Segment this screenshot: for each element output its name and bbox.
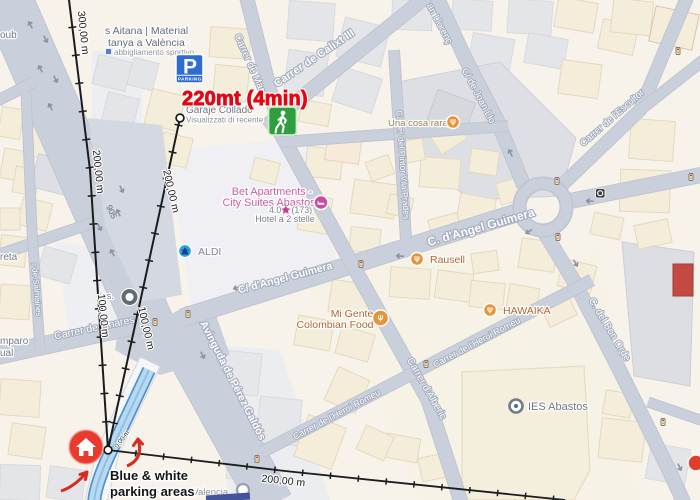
svg-text:parking areas: parking areas: [110, 484, 195, 499]
svg-text:PARKING: PARKING: [178, 76, 202, 82]
svg-text:Visualizzati di recente: Visualizzati di recente: [186, 116, 264, 125]
svg-text:mparo: mparo: [0, 336, 29, 347]
svg-text:Rausell: Rausell: [430, 254, 465, 266]
svg-text:Una cosa rara: Una cosa rara: [388, 118, 448, 129]
svg-text:HAWAIKA: HAWAIKA: [503, 305, 551, 317]
svg-text:Blue & white: Blue & white: [110, 468, 188, 483]
svg-text:Colombian Food: Colombian Food: [296, 319, 373, 331]
svg-text:ALDI: ALDI: [198, 246, 221, 258]
svg-text:IES Abastos: IES Abastos: [528, 401, 588, 413]
svg-text:s Aitana | Material: s Aitana | Material: [105, 25, 188, 37]
svg-text:oub: oub: [0, 30, 17, 41]
svg-text:Hotel a 2 stelle: Hotel a 2 stelle: [255, 214, 315, 224]
svg-text:ual: ual: [0, 348, 13, 359]
svg-text:reta: reta: [0, 252, 18, 263]
